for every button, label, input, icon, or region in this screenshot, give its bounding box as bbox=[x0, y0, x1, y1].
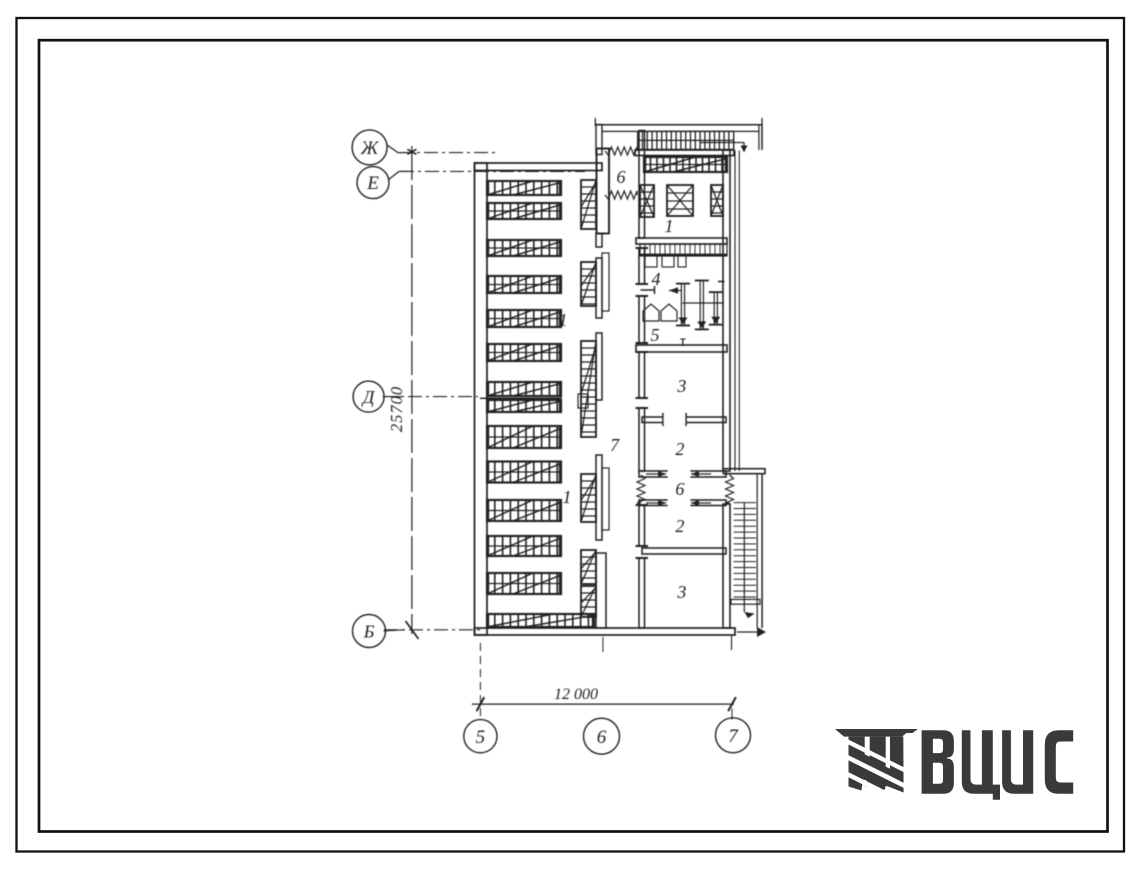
svg-text:6: 6 bbox=[597, 727, 607, 748]
svg-text:7: 7 bbox=[610, 435, 620, 455]
svg-text:6: 6 bbox=[675, 479, 684, 499]
svg-text:1: 1 bbox=[563, 487, 572, 507]
svg-text:12 000: 12 000 bbox=[554, 686, 598, 703]
svg-text:2: 2 bbox=[675, 516, 684, 536]
svg-text:5: 5 bbox=[476, 727, 486, 748]
svg-text:4: 4 bbox=[652, 269, 661, 289]
svg-text:Б: Б bbox=[363, 622, 375, 642]
svg-text:25700: 25700 bbox=[387, 386, 406, 432]
svg-text:Д: Д bbox=[361, 387, 376, 407]
svg-text:7: 7 bbox=[728, 726, 739, 747]
svg-text:6: 6 bbox=[617, 167, 626, 187]
svg-text:1: 1 bbox=[559, 310, 568, 330]
svg-text:5: 5 bbox=[651, 325, 660, 345]
svg-text:3: 3 bbox=[676, 582, 686, 602]
svg-text:1: 1 bbox=[665, 216, 674, 236]
svg-text:3: 3 bbox=[676, 376, 686, 396]
svg-text:2: 2 bbox=[675, 439, 684, 459]
svg-text:Е: Е bbox=[366, 173, 379, 194]
svg-text:Ж: Ж bbox=[360, 138, 380, 159]
